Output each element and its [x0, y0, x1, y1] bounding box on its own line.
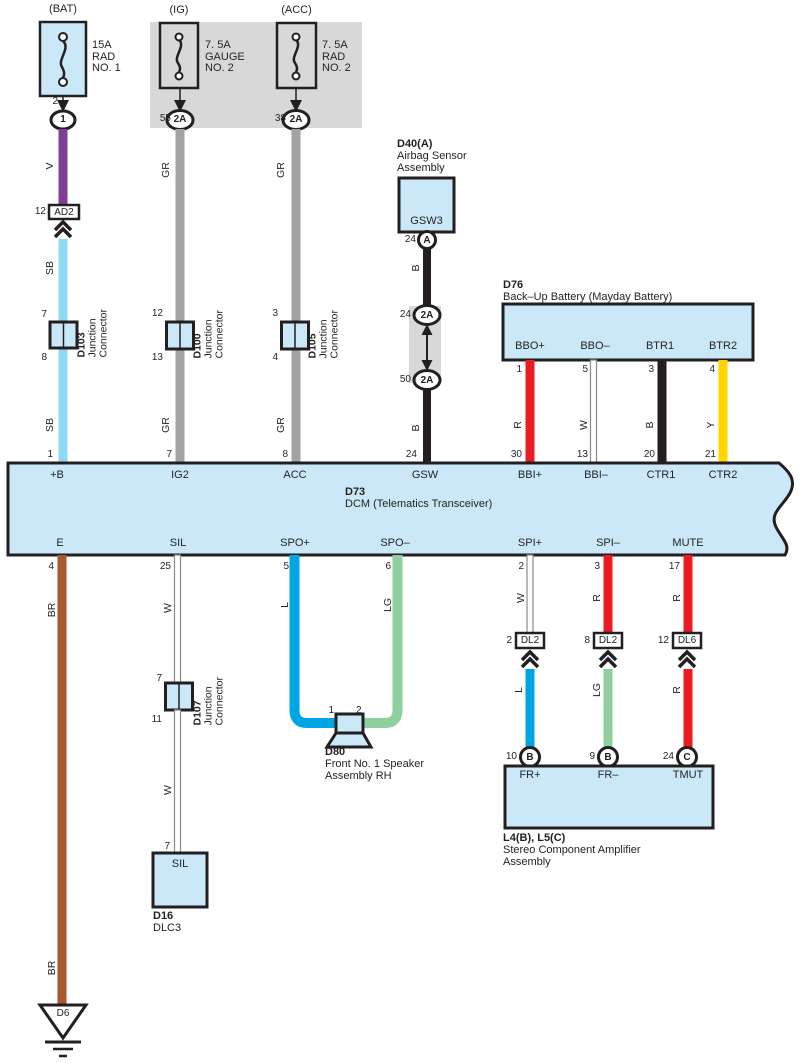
dcm-terminal-label: SPI– — [586, 538, 630, 550]
d105-junction-box — [282, 322, 309, 349]
dcm-terminal-label: SPI+ — [508, 538, 552, 550]
pin-label: 7 — [144, 673, 162, 684]
pin-label: 25 — [153, 561, 171, 572]
wiring-diagram: (BAT) 15A RAD NO. 1 2 1 (IG) 7. 5A GAUGE… — [0, 0, 801, 1063]
d76-terminal-label: BBO+ — [508, 341, 552, 353]
component-name: Back–Up Battery (Mayday Battery) — [503, 292, 672, 304]
gsw-oval-bottom-label: 2A — [411, 374, 443, 387]
pin-label: 21 — [698, 449, 716, 460]
dcm-terminal-label: CTR1 — [639, 470, 683, 482]
wire-color-label: Y — [705, 395, 717, 455]
amp-pin-circle-label: B — [598, 751, 618, 764]
acc-fuse-desc: 7. 5A RAD NO. 2 — [322, 40, 351, 75]
pin-label: 6 — [373, 561, 391, 572]
wire-b-upper — [423, 248, 431, 307]
component-id: D76 — [503, 280, 523, 292]
pin-label: 13 — [145, 352, 163, 363]
wire-color-label: B — [410, 238, 422, 298]
d16-connector-label: SIL — [153, 859, 207, 871]
wire-color-label: W — [515, 568, 527, 628]
pin-label: 7 — [29, 309, 47, 320]
pin-label: 7 — [154, 449, 172, 460]
component-name: Airbag Sensor Assembly — [397, 151, 467, 174]
ground-id-label: D6 — [48, 1008, 78, 1019]
pin-label: 9 — [577, 751, 595, 762]
amp-terminal-label: FR+ — [508, 770, 552, 782]
dcm-terminal-label: GSW — [403, 470, 447, 482]
wire-gr-ig — [176, 129, 185, 463]
pin-label: 24 — [399, 449, 417, 460]
gsw-oval-top-label: 2A — [411, 309, 443, 322]
dcm-terminal-label: MUTE — [664, 538, 712, 550]
wire-w-bbo — [591, 360, 597, 463]
pin-label: 4 — [697, 364, 715, 375]
ig-oval-label: 2A — [164, 113, 196, 126]
wire-w-sil-lower — [175, 710, 181, 853]
wire-color-label: R — [591, 568, 603, 628]
pin-label: 8 — [572, 635, 590, 646]
wire-r-bbo — [526, 360, 535, 463]
wire-color-label: LG — [382, 575, 394, 635]
pin-label: 10 — [499, 751, 517, 762]
wire-color-label: V — [44, 136, 56, 196]
d76-terminal-label: BTR1 — [638, 341, 682, 353]
d100-junction-label: D100Junction Connector — [193, 301, 226, 359]
pin-label: 12 — [145, 308, 163, 319]
gsw3-connector-label: GSW3 — [399, 216, 454, 228]
component-id: D73 — [345, 487, 365, 499]
d105-junction-label: D105Junction Connector — [308, 301, 341, 359]
wire-color-label: SB — [44, 238, 56, 298]
component-id: D16 — [153, 911, 173, 923]
acc-fuse-tag: (ACC) — [277, 5, 316, 17]
dl6-connector-label: DL6 — [673, 635, 701, 646]
wire-w-spi-plus — [527, 555, 533, 633]
d76-terminal-label: BBO– — [573, 341, 617, 353]
dcm-terminal-label: BBI– — [574, 470, 618, 482]
wire-color-label: B — [644, 395, 656, 455]
bat-oval-label: 1 — [47, 113, 79, 126]
dcm-terminal-label: +B — [37, 470, 77, 482]
pin-label: 3 — [636, 364, 654, 375]
wire-y-btr2 — [719, 360, 728, 463]
d100-junction-box — [167, 322, 194, 349]
component-name: DCM (Telematics Transceiver) — [345, 499, 492, 511]
wire-color-label: LG — [591, 660, 603, 720]
component-id: L4(B), L5(C) — [503, 833, 565, 845]
d76-terminal-label: BTR2 — [701, 341, 745, 353]
pin-label: 5 — [570, 364, 588, 375]
wire-color-label: R — [512, 395, 524, 455]
pin-label: 12 — [28, 206, 46, 217]
wire-w-sil-upper — [175, 555, 181, 683]
pin-label: 4 — [36, 561, 54, 572]
dcm-terminal-label: BBI+ — [508, 470, 552, 482]
wire-r-tmut — [684, 669, 693, 748]
component-name: Stereo Component Amplifier Assembly — [503, 845, 641, 868]
wire-color-label: R — [671, 660, 683, 720]
acc-oval-label: 2A — [280, 113, 312, 126]
wire-r-spi-minus — [604, 555, 613, 633]
pin-label: 12 — [651, 635, 669, 646]
pin-label: 11 — [144, 714, 162, 725]
wire-gr-acc — [292, 129, 301, 463]
wire-color-label: GR — [275, 395, 287, 455]
amp-terminal-label: FR– — [586, 770, 630, 782]
wire-color-label: GR — [160, 395, 172, 455]
wire-b-lower — [423, 389, 431, 463]
pin-label: 2 — [494, 635, 512, 646]
pin-label: 20 — [637, 449, 655, 460]
wire-lg-fr-minus — [604, 669, 613, 748]
wire-r-mute — [684, 555, 693, 633]
pin-label: 4 — [260, 352, 278, 363]
wire-color-label: W — [162, 760, 174, 820]
d103-junction-box — [50, 322, 77, 348]
pin-label: 8 — [270, 449, 288, 460]
wire-color-label: W — [162, 578, 174, 638]
wire-l-spo — [295, 555, 337, 723]
d107-junction-box — [166, 683, 193, 710]
pin-label: 5 — [271, 561, 289, 572]
d107-junction-label: D107Junction Connector — [193, 668, 226, 726]
pin-label: 1 — [316, 705, 334, 716]
wire-color-label: W — [578, 395, 590, 455]
pin-label: 24 — [656, 751, 674, 762]
dcm-terminal-label: IG2 — [160, 470, 200, 482]
wire-v — [59, 129, 68, 206]
wire-color-label: SB — [44, 395, 56, 455]
bat-fuse-tag: (BAT) — [40, 4, 86, 16]
pin-label: 24 — [393, 309, 411, 320]
bat-fuse-desc: 15A RAD NO. 1 — [92, 40, 121, 75]
wire-br — [58, 555, 67, 1005]
ig-fuse-tag: (IG) — [160, 5, 198, 17]
dcm-terminal-label: SPO– — [373, 538, 417, 550]
wire-color-label: R — [671, 568, 683, 628]
pin-label: 2 — [40, 96, 58, 107]
pin-label: 13 — [570, 449, 588, 460]
component-name: Front No. 1 Speaker Assembly RH — [325, 759, 424, 782]
pin-label: 50 — [393, 374, 411, 385]
pin-label: 3 — [260, 308, 278, 319]
component-id: D40(A) — [397, 139, 432, 151]
ad2-connector-label: AD2 — [49, 207, 79, 218]
dcm-terminal-label: SPO+ — [273, 538, 317, 550]
wire-sb — [59, 239, 68, 463]
wire-color-label: BR — [46, 580, 58, 640]
wire-l-fr-plus — [526, 669, 535, 748]
component-name: DLC3 — [153, 923, 181, 935]
dcm-terminal-label: SIL — [158, 538, 198, 550]
amp-pin-circle-label: B — [520, 751, 540, 764]
dcm-terminal-label: E — [40, 538, 80, 550]
amp-terminal-label: TMUT — [664, 770, 712, 782]
pin-label: 8 — [29, 352, 47, 363]
wire-color-label: L — [279, 575, 291, 635]
dcm-terminal-label: ACC — [275, 470, 315, 482]
dl2-connector-label: DL2 — [516, 635, 544, 646]
dl2-connector-label: DL2 — [594, 635, 622, 646]
dcm-terminal-label: CTR2 — [701, 470, 745, 482]
pin-label: 2 — [356, 705, 374, 716]
wire-b-btr1 — [658, 360, 667, 463]
pin-label: 30 — [504, 449, 522, 460]
component-id: D80 — [325, 747, 345, 759]
wire-color-label: GR — [160, 140, 172, 200]
amp-pin-circle-label: C — [677, 751, 697, 764]
d103-junction-label: D103Junction Connector — [77, 300, 110, 358]
wire-color-label: GR — [275, 140, 287, 200]
wire-color-label: L — [513, 660, 525, 720]
pin-label: 1 — [504, 364, 522, 375]
pin-label: 1 — [35, 449, 53, 460]
wire-color-label: BR — [46, 938, 58, 998]
ig-fuse-desc: 7. 5A GAUGE NO. 2 — [205, 40, 245, 75]
ad2-chevron-icon — [55, 222, 71, 237]
pin-label: 7 — [152, 841, 170, 852]
